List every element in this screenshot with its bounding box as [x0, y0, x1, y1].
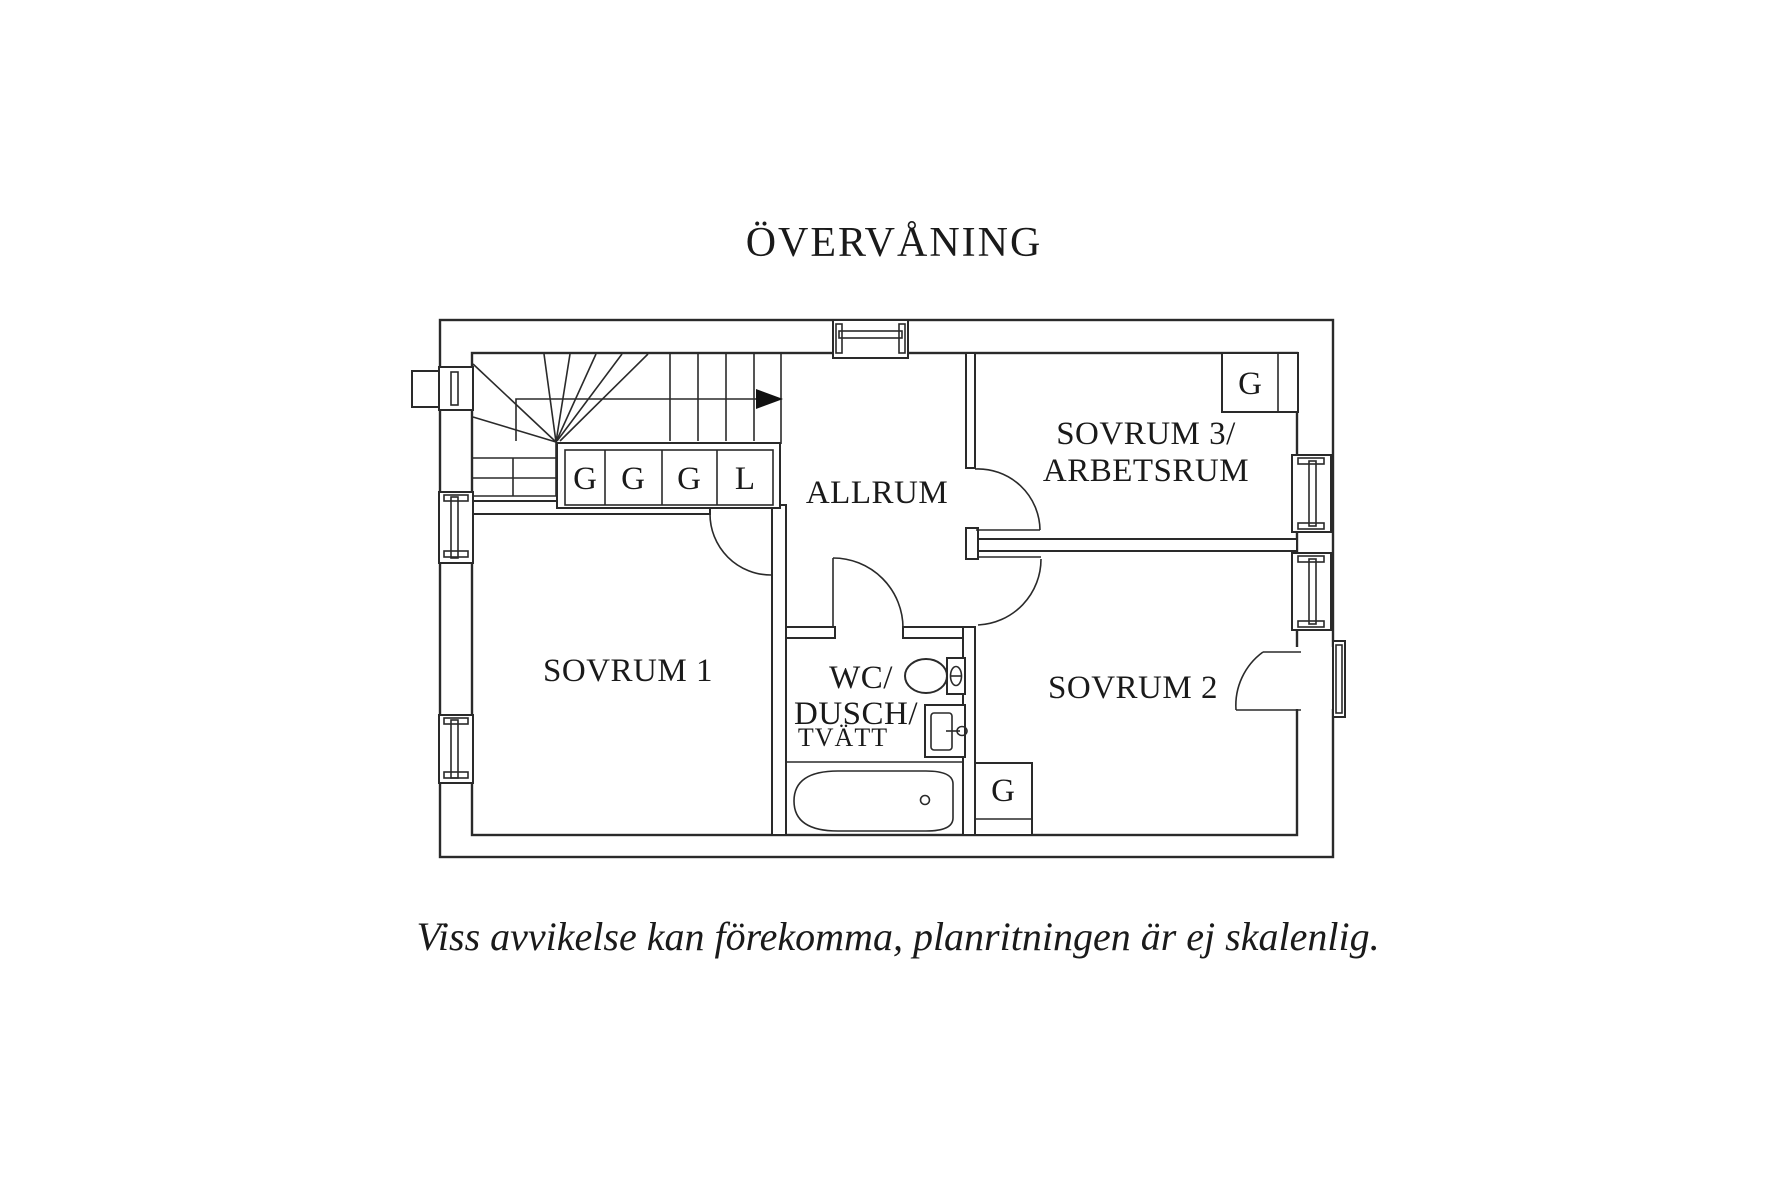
exterior-walls: [440, 320, 1333, 857]
door-wc: [833, 558, 903, 628]
closet-label-g3: G: [677, 461, 701, 497]
closet-label-l: L: [735, 461, 755, 497]
bathtub: [786, 762, 963, 831]
wall-cap-center: [966, 528, 978, 559]
window-sovrum2-right: [1292, 553, 1331, 630]
floor-plan-drawing: ÖVERVÅNING ALLRUM SOVRUM 1 SOVRUM 2 SOVR…: [0, 0, 1780, 1187]
disclaimer-text: Viss avvikelse kan förekomma, planritnin…: [416, 914, 1379, 959]
wall-hall-left: [772, 505, 786, 835]
exterior-wall-outer: [440, 320, 1333, 857]
closet-label-g1: G: [573, 461, 597, 497]
stair-winders: [473, 364, 556, 496]
window-allrum-top: [833, 320, 908, 358]
room-label-sovrum2: SOVRUM 2: [1048, 670, 1218, 706]
window-sovrum1-lower: [439, 715, 473, 783]
window-sovrum1-upper: [439, 492, 473, 563]
wall-wc-top-right: [903, 627, 963, 638]
room-label-allrum: ALLRUM: [806, 475, 948, 511]
page-title: ÖVERVÅNING: [746, 220, 1043, 266]
room-label-sovrum3-line2: ARBETSRUM: [1043, 453, 1249, 489]
stair-walk-line: [516, 389, 783, 441]
door-balcony-sovrum2: [1236, 641, 1345, 717]
door-sovrum2: [978, 557, 1041, 625]
window-stair-left: [412, 367, 473, 410]
room-label-sovrum3-line1: SOVRUM 3/: [1056, 416, 1236, 452]
wall-wc-top-left: [786, 627, 835, 638]
stair-direction-arrow-icon: [756, 389, 783, 409]
closet-label-sovrum2-g: G: [991, 773, 1015, 809]
stair-treads: [544, 354, 754, 442]
wall-sovrum3-sovrum2: [978, 539, 1297, 551]
wall-allrum-sovrum3: [966, 353, 975, 468]
door-sovrum3: [975, 469, 1040, 530]
closet-label-sovrum3-g: G: [1238, 366, 1262, 402]
room-label-wc-line1: WC/: [829, 660, 893, 696]
room-label-wc-line3: TVÄTT: [798, 723, 888, 752]
window-sovrum3-right: [1292, 455, 1331, 532]
floor-plan-page: ÖVERVÅNING ALLRUM SOVRUM 1 SOVRUM 2 SOVR…: [0, 0, 1780, 1187]
toilet: [905, 658, 965, 694]
sink: [925, 705, 967, 757]
door-sovrum1: [710, 514, 771, 575]
room-label-sovrum1: SOVRUM 1: [543, 653, 713, 689]
closet-label-g2: G: [621, 461, 645, 497]
